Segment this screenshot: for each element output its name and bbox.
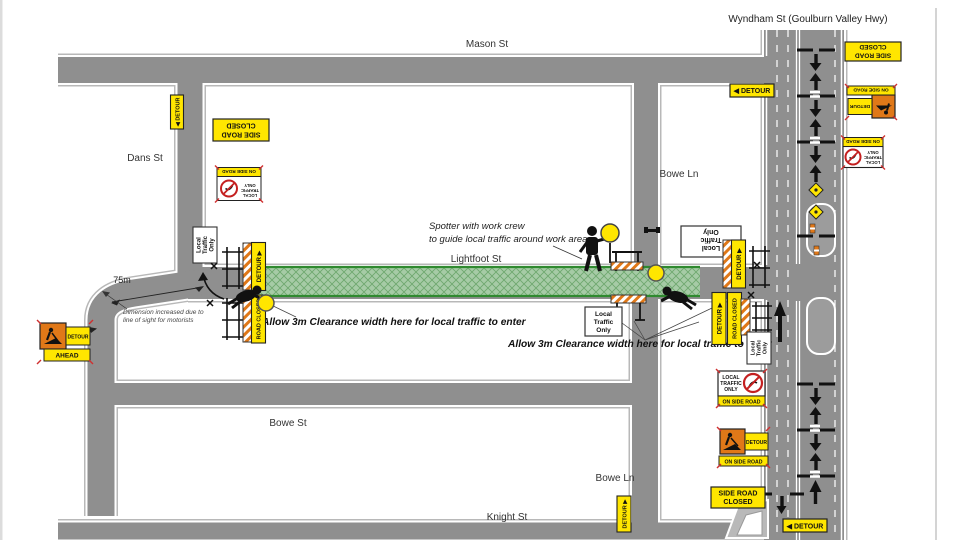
- sign-text: DETOUR ▶: [256, 250, 263, 282]
- dim-note-line1: Dimension increased due to: [123, 309, 204, 316]
- sign-text: ONLY: [244, 183, 255, 188]
- label-lightfoot-st: Lightfoot St: [451, 254, 502, 265]
- sign-local-traffic-only-white-right: Local Traffic Only: [747, 332, 771, 364]
- note-clearance-left: Allow 3m Clearance width here for local …: [261, 317, 527, 328]
- sign-text: ONLY: [867, 150, 878, 155]
- sign-local-traffic-only-on-side-road-hwy-south: LOCAL TRAFFIC ONLY ON SIDE ROAD: [841, 136, 885, 170]
- sign-side-road-closed-dans: SIDE ROAD CLOSED: [213, 119, 269, 141]
- sign-detour-hwy-bottom: ◀ DETOUR: [783, 519, 827, 532]
- sign-side-road-closed-hwy-south: SIDE ROAD CLOSED: [845, 42, 901, 61]
- sign-text: ON SIDE ROAD: [845, 139, 879, 144]
- gate-frame: [222, 298, 243, 340]
- label-bowe-ln-north: Bowe Ln: [660, 169, 699, 180]
- median-island-south: [807, 298, 835, 354]
- sign-text: CLOSED: [859, 43, 886, 50]
- sign-text: DETOUR ▶: [736, 248, 743, 280]
- sign-text: Traffic: [700, 236, 721, 243]
- barrier-board: [741, 299, 750, 335]
- sign-local-traffic-only-white-dans: Local Traffic Only: [193, 227, 217, 263]
- note-spotter-line1: Spotter with work crew: [429, 221, 526, 232]
- label-dans-st: Dans St: [127, 153, 163, 164]
- sign-detour-dans-vertical: ◀ DETOUR: [171, 95, 184, 129]
- sign-detour-knight: DETOUR ▶: [617, 496, 631, 532]
- sign-text: Only: [596, 327, 611, 334]
- sign-detour-dans-text: ◀ DETOUR: [174, 98, 181, 128]
- sign-text: CLOSED: [723, 499, 752, 506]
- label-bowe-ln-south: Bowe Ln: [596, 473, 635, 484]
- no-turn-icon: [744, 374, 762, 392]
- no-turn-icon: [221, 181, 237, 197]
- sign-text: SIDE ROAD: [855, 52, 891, 59]
- spotter-leader-line: [553, 246, 582, 259]
- sign-text: SIDE ROAD: [719, 491, 758, 498]
- tgs-diagram: Wyndham St (Goulburn Valley Hwy) Mason S…: [0, 0, 960, 540]
- spotter-paddle-icon: [601, 224, 619, 242]
- sign-text: Traffic: [594, 319, 614, 326]
- sign-text: ON SIDE ROAD: [722, 400, 760, 406]
- controller-light-icon: [648, 265, 664, 281]
- sign-text: Local: [702, 244, 720, 251]
- sign-text: ON SIDE ROAD: [724, 460, 762, 466]
- sign-detour-right-gate-upper: DETOUR ▶: [732, 240, 746, 288]
- sign-detour-mason: ◀ DETOUR: [730, 84, 774, 97]
- dimension-value: 75m: [113, 275, 131, 285]
- sign-road-closed-right-gate: ROAD CLOSED: [728, 293, 742, 345]
- sign-text: Local: [595, 311, 612, 318]
- sign-local-traffic-only-on-side-road-dans: LOCAL TRAFFIC ONLY ON SIDE ROAD: [215, 166, 263, 203]
- barrier-board: [243, 243, 252, 290]
- sign-local-traffic-only-on-side-road-hwy: LOCAL TRAFFIC ONLY ON SIDE ROAD: [716, 369, 767, 408]
- sign-text: DETOUR: [849, 103, 870, 109]
- sign-text: Only: [763, 341, 769, 354]
- no-turn-icon: [846, 150, 861, 165]
- sign-local-traffic-only-center: Local Traffic Only: [585, 307, 622, 336]
- dim-note-line2: line of sight for motorists: [123, 317, 194, 324]
- sign-text: ON SIDE ROAD: [853, 87, 889, 93]
- sign-text: Local: [197, 237, 203, 253]
- sign-detour-on-side-road-hwy-south: DETOUR ON SIDE ROAD: [845, 84, 897, 120]
- sign-text: ON SIDE ROAD: [221, 169, 255, 174]
- sign-text: SIDE ROAD: [222, 131, 261, 138]
- sign-text: DETOUR ▶: [716, 302, 723, 334]
- sign-detour-left-gate: DETOUR ▶: [252, 243, 266, 291]
- note-spotter-line2: to guide local traffic around work area: [429, 234, 587, 245]
- sign-text: ROAD CLOSED: [733, 298, 739, 339]
- label-wyndham-st: Wyndham St (Goulburn Valley Hwy): [728, 14, 887, 25]
- barrier-board: [723, 240, 732, 288]
- label-mason-st: Mason St: [466, 39, 508, 50]
- sign-text: Only: [703, 228, 719, 235]
- sign-side-road-closed-hwy: SIDE ROAD CLOSED: [711, 487, 765, 508]
- sign-text: DETOUR: [67, 335, 88, 341]
- sign-text: ONLY: [724, 387, 738, 393]
- sign-roadworks-detour-ahead: DETOUR AHEAD: [37, 320, 93, 364]
- page-left-edge: [0, 0, 3, 540]
- portable-barricade-upper: [611, 252, 643, 271]
- work-area: [253, 266, 700, 297]
- barrier-board: [243, 296, 252, 342]
- label-knight-st: Knight St: [487, 512, 528, 523]
- sign-text: AHEAD: [55, 353, 78, 360]
- sign-text: CLOSED: [226, 122, 255, 129]
- sign-text: ◀ DETOUR: [733, 88, 771, 95]
- controller-light-icon: [258, 295, 274, 311]
- sign-text: DETOUR: [746, 440, 767, 446]
- sign-text: DETOUR ▶: [621, 499, 628, 529]
- traffic-guidance-scheme-page: Wyndham St (Goulburn Valley Hwy) Mason S…: [0, 0, 960, 540]
- sign-text: Traffic: [203, 235, 209, 254]
- sign-detour-on-side-road-hwy: DETOUR ON SIDE ROAD: [717, 427, 770, 468]
- label-bowe-st: Bowe St: [269, 418, 306, 429]
- sign-detour-right-gate-lower: DETOUR ▶: [712, 293, 726, 345]
- sign-text: Only: [210, 238, 216, 252]
- sign-text: ◀ DETOUR: [786, 524, 824, 531]
